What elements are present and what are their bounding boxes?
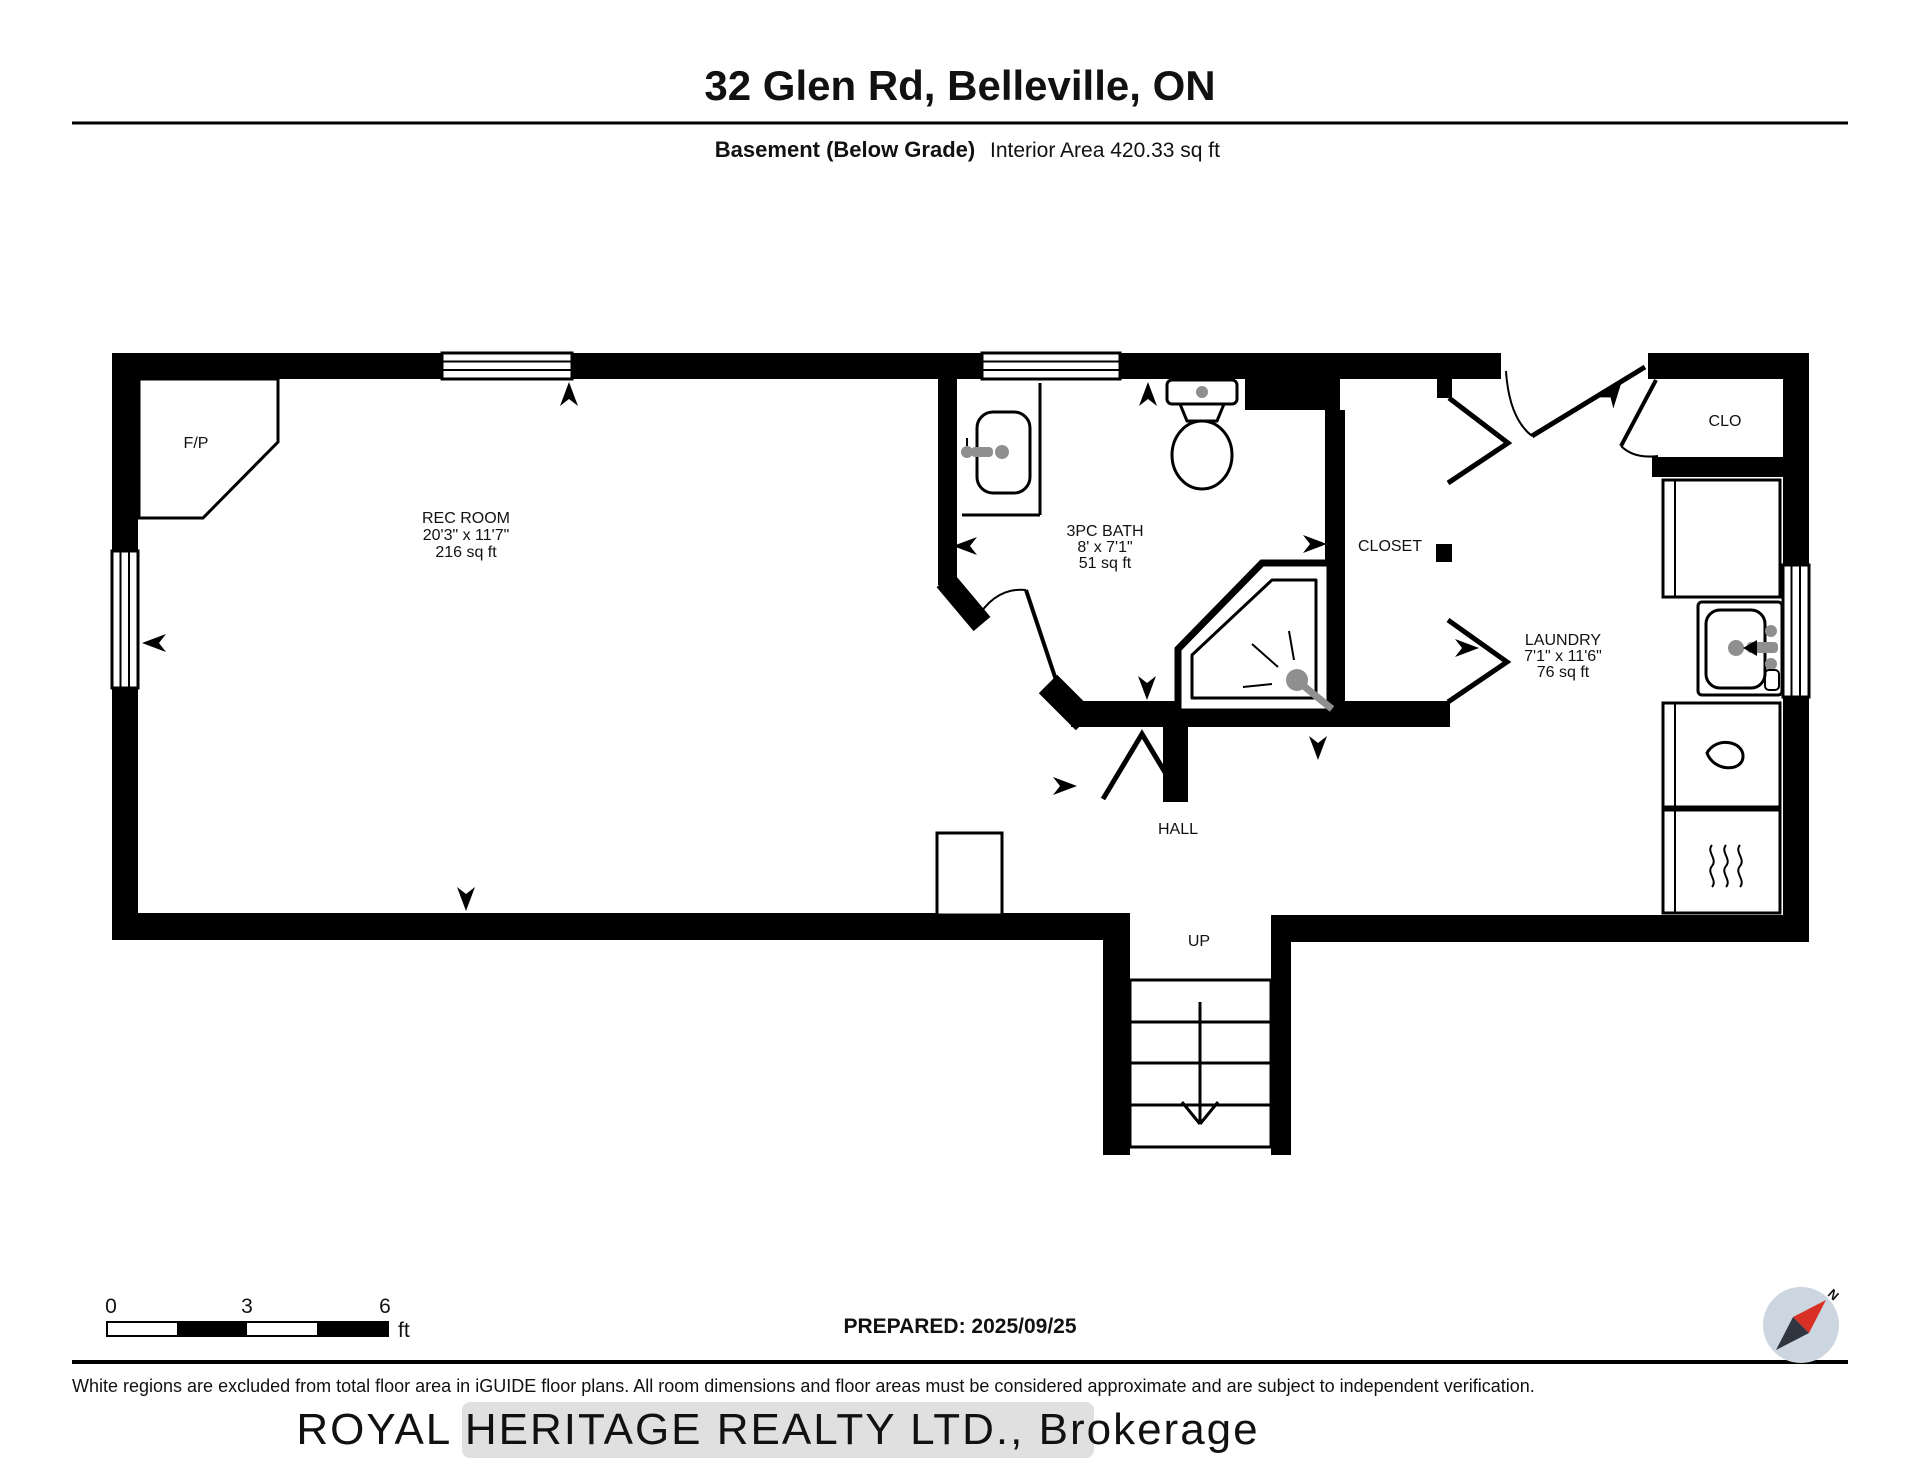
rec-room-area: 216 sq ft — [435, 544, 497, 561]
shower-head — [1286, 669, 1308, 691]
wall-right-lower — [1783, 697, 1809, 942]
direction-arrows — [142, 378, 1628, 911]
wall-stub-top — [1437, 379, 1452, 398]
wall-bifold-square — [1436, 544, 1452, 562]
door-swing-arc — [1621, 446, 1658, 457]
window-frame — [442, 353, 572, 379]
wall-left-upper — [112, 353, 138, 551]
top-entry-door — [1506, 367, 1645, 436]
direction-arrow-icon — [457, 887, 475, 911]
direction-arrow-icon — [1309, 736, 1327, 760]
wall-stair-right — [1271, 942, 1291, 1155]
toilet-bowl — [1172, 421, 1232, 489]
wall-bump — [1245, 379, 1340, 410]
window-frame — [1783, 565, 1809, 697]
door-leaf — [1026, 590, 1058, 686]
sink-drain — [995, 445, 1009, 459]
laundry-dims: 7'1" x 11'6" — [1524, 648, 1602, 665]
interior-area-label: Interior Area 420.33 sq ft — [990, 139, 1220, 162]
floor-label: Basement (Below Grade) — [715, 137, 975, 162]
faucet-knob-cold — [1765, 658, 1777, 670]
bifold-door-lower — [1448, 620, 1507, 702]
faucet-spout — [971, 447, 993, 457]
footer: 0 3 6 ft PREPARED: 2025/09/25 White regi… — [72, 1286, 1848, 1458]
laundry-area: 76 sq ft — [1537, 664, 1590, 681]
window-frame — [982, 353, 1120, 379]
laundry-sink — [1698, 602, 1782, 695]
chimney-chase — [937, 833, 1002, 915]
bath-area: 51 sq ft — [1079, 555, 1132, 572]
stairs-up-label: UP — [1188, 933, 1210, 950]
sink-drain — [1728, 640, 1744, 656]
wall-left-lower — [112, 688, 138, 940]
bifold-door-upper — [1448, 398, 1508, 483]
direction-arrow-icon — [1053, 777, 1077, 795]
closet-label: CLOSET — [1358, 538, 1422, 555]
compass: N — [1763, 1286, 1842, 1363]
scale-tick-0: 0 — [105, 1295, 117, 1318]
stairs — [1130, 980, 1271, 1147]
toilet-seat — [1180, 404, 1224, 421]
direction-arrow-icon — [1138, 676, 1156, 700]
scale-bar-segment — [317, 1322, 388, 1336]
rec-room-dims: 20'3" x 11'7" — [423, 527, 510, 544]
toilet — [1167, 380, 1237, 489]
wall-bottom-laundry — [1271, 915, 1809, 942]
wall-bottom-rec — [112, 913, 1130, 940]
fixtures — [139, 379, 1782, 1147]
direction-arrow-icon — [560, 382, 578, 406]
toilet-button — [1196, 386, 1208, 398]
prepared-date: PREPARED: 2025/09/25 — [843, 1315, 1076, 1338]
window-frame — [112, 551, 138, 688]
scale-bar: 0 3 6 ft — [105, 1295, 410, 1342]
bath-dims: 8' x 7'1" — [1077, 539, 1132, 556]
scale-bar-segment — [177, 1322, 247, 1336]
scale-tick-3: 3 — [241, 1295, 253, 1318]
bath-sink — [961, 383, 1040, 515]
floorplan-page: 32 Glen Rd, Belleville, ON Basement (Bel… — [0, 0, 1920, 1484]
page-title: 32 Glen Rd, Belleville, ON — [704, 62, 1215, 109]
appliance-top — [1663, 480, 1780, 597]
appliance-dryer — [1663, 810, 1780, 913]
clo-label: CLO — [1709, 413, 1742, 430]
wall-clo-bottom — [1652, 457, 1783, 477]
scale-unit: ft — [398, 1319, 410, 1342]
disclaimer-text: White regions are excluded from total fl… — [72, 1376, 1535, 1396]
door-swing-arc — [1506, 371, 1532, 436]
scale-tick-6: 6 — [379, 1295, 391, 1318]
hall-label: HALL — [1158, 821, 1198, 838]
wall-top-3 — [1120, 353, 1501, 379]
direction-arrow-icon — [1303, 535, 1327, 553]
shower — [1178, 563, 1332, 712]
window-right-laundry — [1783, 565, 1809, 697]
laundry-name: LAUNDRY — [1525, 632, 1602, 649]
header: 32 Glen Rd, Belleville, ON Basement (Bel… — [72, 62, 1848, 162]
door-leaf — [1532, 367, 1645, 436]
rec-room-name: REC ROOM — [422, 510, 510, 527]
fireplace-outline — [139, 379, 278, 518]
wall-top-2 — [572, 353, 982, 379]
wall-right-upper — [1783, 353, 1809, 565]
bath-name: 3PC BATH — [1066, 523, 1143, 540]
fireplace-label: F/P — [184, 435, 209, 452]
direction-arrow-icon — [1139, 382, 1157, 406]
window-top-bath — [982, 353, 1120, 379]
bath-door — [976, 590, 1058, 686]
direction-arrow-icon — [142, 634, 166, 652]
watermark-text: ROYAL HERITAGE REALTY LTD., Brokerage — [296, 1405, 1259, 1454]
walls — [112, 353, 1809, 1155]
faucet-knob-hot — [1765, 625, 1777, 637]
window-top-rec — [442, 353, 572, 379]
door-leaf — [1621, 380, 1656, 446]
wall-stair-left — [1103, 940, 1130, 1155]
wall-bath-left — [938, 379, 957, 585]
clo-door — [1621, 380, 1658, 457]
window-left-rec — [112, 551, 138, 688]
wall-top-1 — [112, 353, 442, 379]
appliance-washer — [1663, 703, 1780, 807]
